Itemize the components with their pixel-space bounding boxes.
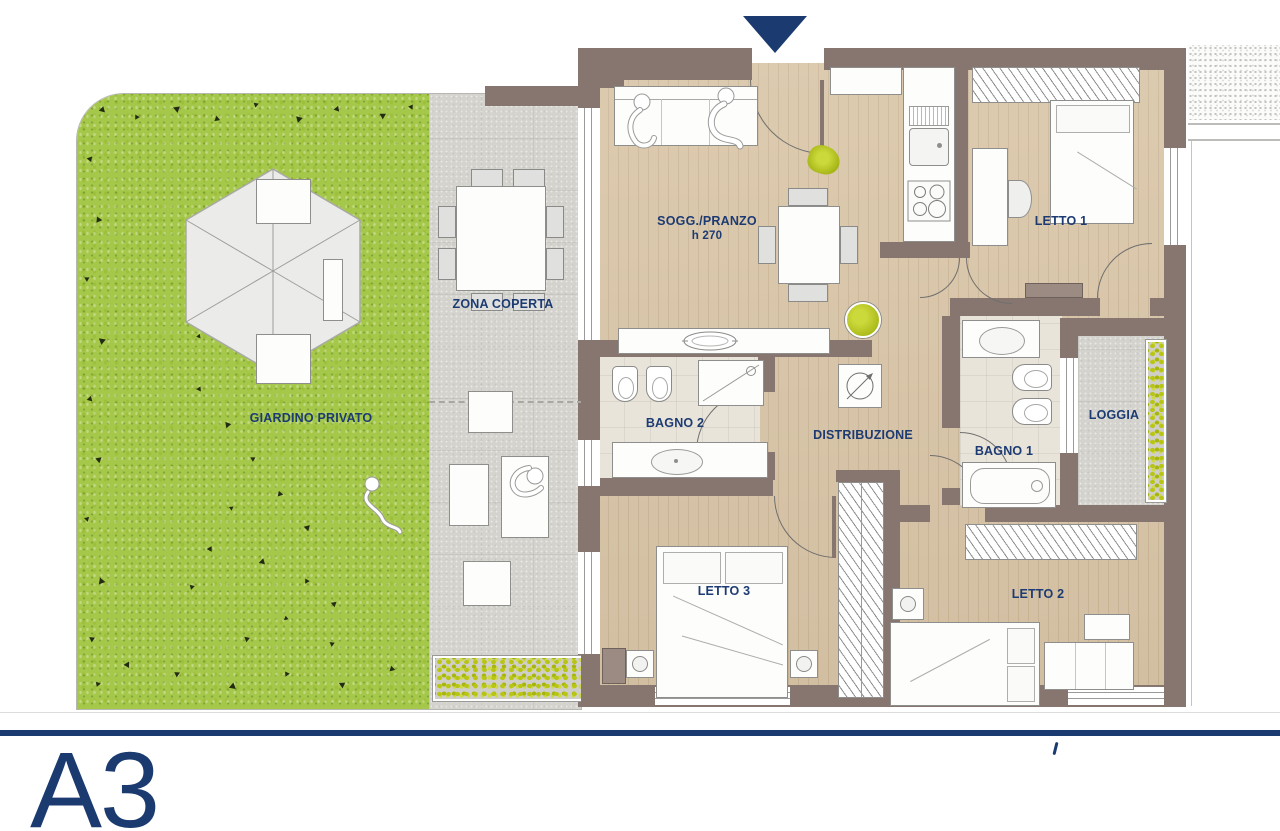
room-label-soggiorno: SOGG./PRANZO — [657, 214, 757, 228]
room-label-letto3: LETTO 3 — [698, 584, 751, 598]
shrub-icon: ▲ — [248, 453, 259, 465]
wardrobe — [972, 67, 1140, 103]
shrub-icon: ▲ — [226, 679, 239, 691]
shrub-icon: ▲ — [92, 213, 106, 226]
shrub-icon: ▲ — [226, 503, 236, 513]
potted-plant — [845, 302, 881, 338]
shrub-icon: ▲ — [220, 417, 234, 431]
desk — [972, 148, 1008, 246]
shrub-icon: ▲ — [96, 104, 109, 116]
shrub-icon: ▲ — [171, 668, 184, 681]
desk-chair — [1008, 180, 1032, 218]
entrance-door-leaf — [820, 80, 824, 154]
shrub-icon: ▲ — [92, 678, 104, 690]
neighbor-paving — [1188, 45, 1280, 120]
shrub-icon: ▲ — [94, 573, 109, 587]
shrub-icon: ▲ — [84, 394, 96, 405]
shrub-icon: ▲ — [251, 99, 261, 110]
kitchen-hob — [907, 180, 951, 222]
dining-chair — [788, 188, 828, 206]
shrub-icon: ▲ — [300, 520, 314, 534]
window — [578, 440, 600, 486]
dining-chair — [788, 284, 828, 302]
shrub-icon: ▲ — [82, 273, 93, 285]
window — [1060, 358, 1078, 453]
terrace-planter — [433, 656, 582, 701]
shrub-icon: ▲ — [335, 677, 349, 691]
terrace-chair — [471, 169, 503, 187]
wall — [1060, 318, 1186, 336]
garden-label: GIARDINO PRIVATO — [250, 411, 373, 425]
outdoor-area: ▲▲▲▲▲▲▲▲▲▲▲▲▲▲▲▲▲▲▲▲▲▲▲▲▲▲▲▲▲▲▲▲▲▲▲▲▲▲▲▲ — [76, 93, 582, 710]
shrub-icon: ▲ — [241, 633, 252, 645]
garden-lounger — [256, 179, 311, 224]
wall — [880, 242, 970, 258]
shrub-icon: ▲ — [274, 488, 286, 499]
shrub-icon: ▲ — [211, 114, 222, 124]
electrical-panel-symbol — [838, 364, 882, 408]
room-label-bagno2: BAGNO 2 — [646, 416, 704, 430]
shrub-icon: ▲ — [406, 101, 418, 112]
kitchen-drainer — [909, 106, 949, 126]
shrub-icon: ▲ — [386, 664, 398, 675]
toilet — [612, 366, 638, 402]
terrace-chair — [438, 206, 456, 238]
dresser — [602, 648, 626, 684]
room-height-note: h 270 — [692, 230, 722, 242]
shrub-icon: ▲ — [170, 100, 185, 116]
covered-terrace-label: ZONA COPERTA — [452, 297, 553, 311]
stray-mark — [1052, 742, 1058, 755]
walk-in-closet — [838, 482, 884, 698]
shrub-icon: ▲ — [93, 332, 108, 348]
window — [578, 552, 600, 654]
wall — [942, 316, 960, 428]
shrub-icon: ▲ — [86, 633, 98, 646]
decor-dish — [680, 330, 740, 352]
entrance-arrow-icon — [743, 16, 807, 53]
bedroom3-door-leaf — [832, 496, 836, 558]
bidet — [646, 366, 672, 402]
shrub-icon: ▲ — [120, 658, 134, 672]
terrace-table — [456, 186, 546, 291]
wall — [1150, 298, 1186, 316]
site-line — [1188, 123, 1280, 125]
person-figure — [618, 88, 662, 152]
bathtub — [962, 462, 1056, 508]
bench — [1044, 642, 1134, 690]
bathroom-vanity — [612, 442, 768, 478]
shower — [698, 360, 764, 406]
terrace-armchair — [463, 561, 511, 606]
person-figure — [501, 458, 549, 508]
footer-rule-navy — [0, 730, 1280, 736]
nightstand — [626, 650, 654, 678]
shrub-icon: ▲ — [281, 668, 293, 679]
bidet — [1012, 398, 1052, 425]
shrub-icon: ▲ — [186, 581, 198, 593]
wardrobe — [965, 524, 1137, 560]
room-label-loggia: LOGGIA — [1089, 408, 1140, 422]
unit-label: A3 — [30, 736, 158, 831]
terrace-chair — [546, 206, 564, 238]
room-label-letto2: LETTO 2 — [1012, 587, 1065, 601]
terrace-chair — [438, 248, 456, 280]
wall — [1164, 48, 1186, 687]
tv-unit — [1025, 283, 1083, 298]
room-label-letto1: LETTO 1 — [1035, 214, 1088, 228]
nightstand — [790, 650, 818, 678]
shrub-icon: ▲ — [256, 556, 269, 568]
shrub-icon: ▲ — [328, 597, 341, 610]
garden-lounger — [323, 259, 343, 321]
shrub-icon: ▲ — [301, 575, 313, 586]
terrace-side-table — [449, 464, 489, 526]
side-table — [1084, 614, 1130, 640]
wall — [950, 298, 1100, 316]
window — [578, 108, 600, 340]
site-boundary — [1191, 141, 1192, 706]
bed — [890, 622, 1040, 706]
toilet — [1012, 364, 1052, 391]
shrub-icon: ▲ — [331, 103, 343, 114]
wall — [598, 478, 773, 496]
dining-chair — [840, 226, 858, 264]
loggia-planter — [1146, 340, 1166, 502]
wall — [485, 86, 600, 106]
shrub-icon: ▲ — [376, 108, 390, 122]
shrub-icon: ▲ — [194, 383, 205, 394]
shrub-icon: ▲ — [92, 453, 105, 466]
shrub-icon: ▲ — [131, 111, 143, 122]
site-line — [1188, 139, 1280, 141]
floor-plan-canvas: ▲▲▲▲▲▲▲▲▲▲▲▲▲▲▲▲▲▲▲▲▲▲▲▲▲▲▲▲▲▲▲▲▲▲▲▲▲▲▲▲ — [0, 0, 1280, 831]
person-figure — [358, 474, 404, 536]
kitchen-sink — [909, 128, 949, 166]
wall — [900, 505, 930, 522]
shrub-icon: ▲ — [83, 153, 96, 166]
dining-chair — [758, 226, 776, 264]
dining-table — [778, 206, 840, 284]
bathroom-vanity — [962, 320, 1040, 358]
room-label-bagno1: BAGNO 1 — [975, 444, 1033, 458]
shrub-icon: ▲ — [281, 614, 290, 622]
person-figure — [696, 84, 748, 150]
terrace-chair — [546, 248, 564, 280]
nightstand — [892, 588, 924, 620]
garden-lounger — [256, 334, 311, 384]
shrub-icon: ▲ — [82, 513, 94, 525]
shrub-icon: ▲ — [326, 638, 337, 650]
shrub-icon: ▲ — [204, 543, 217, 555]
footer-rule-light — [0, 712, 1280, 713]
bed — [656, 546, 788, 698]
hall-cabinet — [830, 67, 902, 95]
window — [1164, 148, 1186, 245]
terrace-armchair — [468, 391, 513, 433]
shrub-icon: ▲ — [290, 110, 306, 126]
terrace-chair — [513, 169, 545, 187]
room-label-distribuzione: DISTRIBUZIONE — [813, 428, 913, 442]
